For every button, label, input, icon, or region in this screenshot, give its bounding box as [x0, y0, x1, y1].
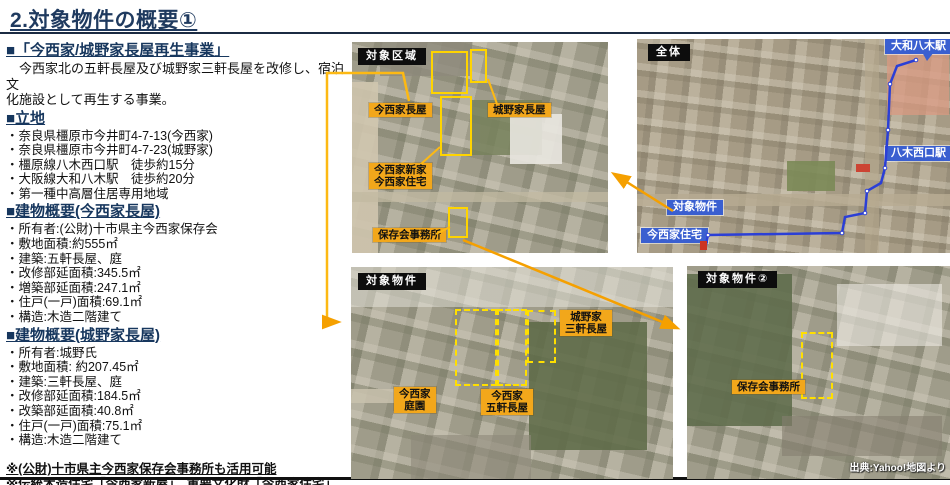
list-item: ・所有者:城野氏	[6, 346, 348, 361]
highlight-box-imanishi-shinke	[440, 96, 472, 156]
map-texture-park	[787, 161, 835, 191]
list-item: ・改築部延面積:40.8㎡	[6, 404, 348, 419]
list-item: ・奈良県橿原市今井町4-7-13(今西家)	[6, 129, 348, 144]
header-divider	[0, 32, 950, 34]
list-item: ・構造:木造二階建て	[6, 310, 348, 325]
map-label-goken-nagaya: 今西家 五軒長屋	[481, 389, 533, 415]
map-property2-tag: 対象物件②	[698, 271, 777, 288]
map-label-hozonkai-office: 保存会事務所	[373, 228, 446, 242]
list-item: ・第一種中高層住居専用地域	[6, 187, 348, 202]
highlight-box-imanishi-nagaya	[431, 51, 468, 94]
map-texture-road	[865, 39, 879, 253]
jono-building-list: ・所有者:城野氏 ・敷地面積: 約207.45㎡ ・建築:三軒長屋、庭 ・改修部…	[6, 346, 348, 448]
page-title: 2.対象物件の概要①	[10, 4, 197, 34]
map-texture-roofs	[837, 284, 942, 346]
description-panel: ■「今西家/城野家長屋再生事業」 今西家北の五軒長屋及び城野家三軒長屋を改修し、…	[6, 40, 348, 485]
highlight-box-teien	[455, 309, 497, 386]
map-texture-road	[352, 192, 608, 202]
map-texture-building	[510, 114, 562, 164]
map-label-yamato-yagi-station: 大和八木駅	[885, 39, 950, 54]
map-texture-roofs	[411, 435, 531, 479]
map-label-imanishi-jutaku: 今西家住宅	[641, 228, 708, 243]
map-property-tag: 対象物件	[358, 273, 426, 290]
map-label-line: 三軒長屋	[565, 323, 607, 335]
map-label-line: 五軒長屋	[486, 402, 528, 414]
list-item: ・橿原線八木西口駅 徒歩約15分	[6, 158, 348, 173]
slide-page: 2.対象物件の概要① ■「今西家/城野家長屋再生事業」 今西家北の五軒長屋及び城…	[0, 0, 950, 485]
list-item: ・住戸(一戸)面積:69.1㎡	[6, 295, 348, 310]
list-item: ・建築:五軒長屋、庭	[6, 252, 348, 267]
section-heading-imanishi-building: ■建物概要(今西家長屋)	[6, 203, 348, 221]
map-label-line: 庭園	[399, 400, 431, 412]
map-target-property2: 対象物件② 保存会事務所 出典:Yahoo!地図より	[687, 266, 950, 479]
map-label-line: 今西家	[399, 388, 431, 400]
list-item: ・住戸(一戸)面積:75.1㎡	[6, 419, 348, 434]
list-item: ・増築部延面積:247.1㎡	[6, 281, 348, 296]
highlight-box-goken-nagaya	[497, 309, 527, 386]
map-label-imanishi-nagaya: 今西家長屋	[369, 103, 432, 117]
map-label-yagi-nishiguchi-station: 八木西口駅	[885, 146, 950, 161]
list-item: ・大阪線大和八木駅 徒歩約20分	[6, 172, 348, 187]
highlight-box-hozonkai-office	[801, 332, 833, 399]
highlight-box-jono-sanken	[527, 310, 556, 363]
footnote-line: ※(公財)十市県主今西家保存会事務所も活用可能	[6, 462, 348, 477]
map-label-jono-nagaya: 城野家長屋	[488, 103, 551, 117]
map-texture-station	[887, 53, 949, 115]
map-source-credit: 出典:Yahoo!地図より	[850, 459, 946, 474]
section-heading-jono-building: ■建物概要(城野家長屋)	[6, 327, 348, 345]
map-label-imanishi-shinke: 今西家新家 今西家住宅	[369, 163, 432, 189]
imanishi-building-list: ・所有者:(公財)十市県主今西家保存会 ・敷地面積:約555㎡ ・建築:五軒長屋…	[6, 222, 348, 324]
map-area-tag: 対象区域	[358, 48, 426, 65]
map-texture-vegetation	[687, 274, 792, 426]
list-item: ・改修部延面積:345.5㎡	[6, 266, 348, 281]
list-item: ・敷地面積: 約207.45㎡	[6, 360, 348, 375]
list-item: ・建築:三軒長屋、庭	[6, 375, 348, 390]
map-target-property: 対象物件 城野家 三軒長屋 今西家 庭園 今西家 五軒長屋	[351, 267, 673, 479]
footnote-line: ※伝統木造住宅「今西家新屋」、重要文化財「今西家住宅」は	[6, 477, 348, 485]
section-heading-location: ■立地	[6, 110, 348, 128]
map-label-hozonkai-office: 保存会事務所	[732, 380, 805, 394]
project-body-line: 化施設として再生する事業。	[6, 92, 348, 108]
map-label-line: 今西家新家	[374, 164, 427, 176]
map-label-teien: 今西家 庭園	[394, 387, 436, 413]
map-label-line: 城野家	[565, 311, 607, 323]
list-item: ・構造:木造二階建て	[6, 433, 348, 448]
project-body-line: 今西家北の五軒長屋及び城野家三軒長屋を改修し、宿泊文	[6, 61, 348, 92]
list-item: ・敷地面積:約555㎡	[6, 237, 348, 252]
highlight-box-hozonkai-office	[448, 207, 468, 238]
map-target-area: 対象区域 今西家長屋 城野家長屋 今西家新家 今西家住宅 保存会事務所	[352, 42, 608, 253]
list-item: ・改修部延面積:184.5㎡	[6, 389, 348, 404]
list-item: ・奈良県橿原市今井町4-7-23(城野家)	[6, 143, 348, 158]
highlight-box-jono-nagaya	[470, 49, 487, 83]
map-label-line: 今西家住宅	[374, 176, 427, 188]
section-heading-project: ■「今西家/城野家長屋再生事業」	[6, 42, 348, 60]
location-list: ・奈良県橿原市今井町4-7-13(今西家) ・奈良県橿原市今井町4-7-23(城…	[6, 129, 348, 202]
map-texture-roofs	[782, 416, 942, 456]
map-overall: 全体 大和八木駅 八木西口駅 対象物件 今西家住宅	[637, 39, 950, 253]
footnotes: ※(公財)十市県主今西家保存会事務所も活用可能 ※伝統木造住宅「今西家新屋」、重…	[6, 462, 348, 485]
list-item: ・所有者:(公財)十市県主今西家保存会	[6, 222, 348, 237]
map-label-target-property: 対象物件	[667, 200, 723, 215]
map-label-line: 今西家	[486, 390, 528, 402]
map-label-jono-sanken: 城野家 三軒長屋	[560, 310, 612, 336]
map-overall-tag: 全体	[648, 44, 690, 61]
